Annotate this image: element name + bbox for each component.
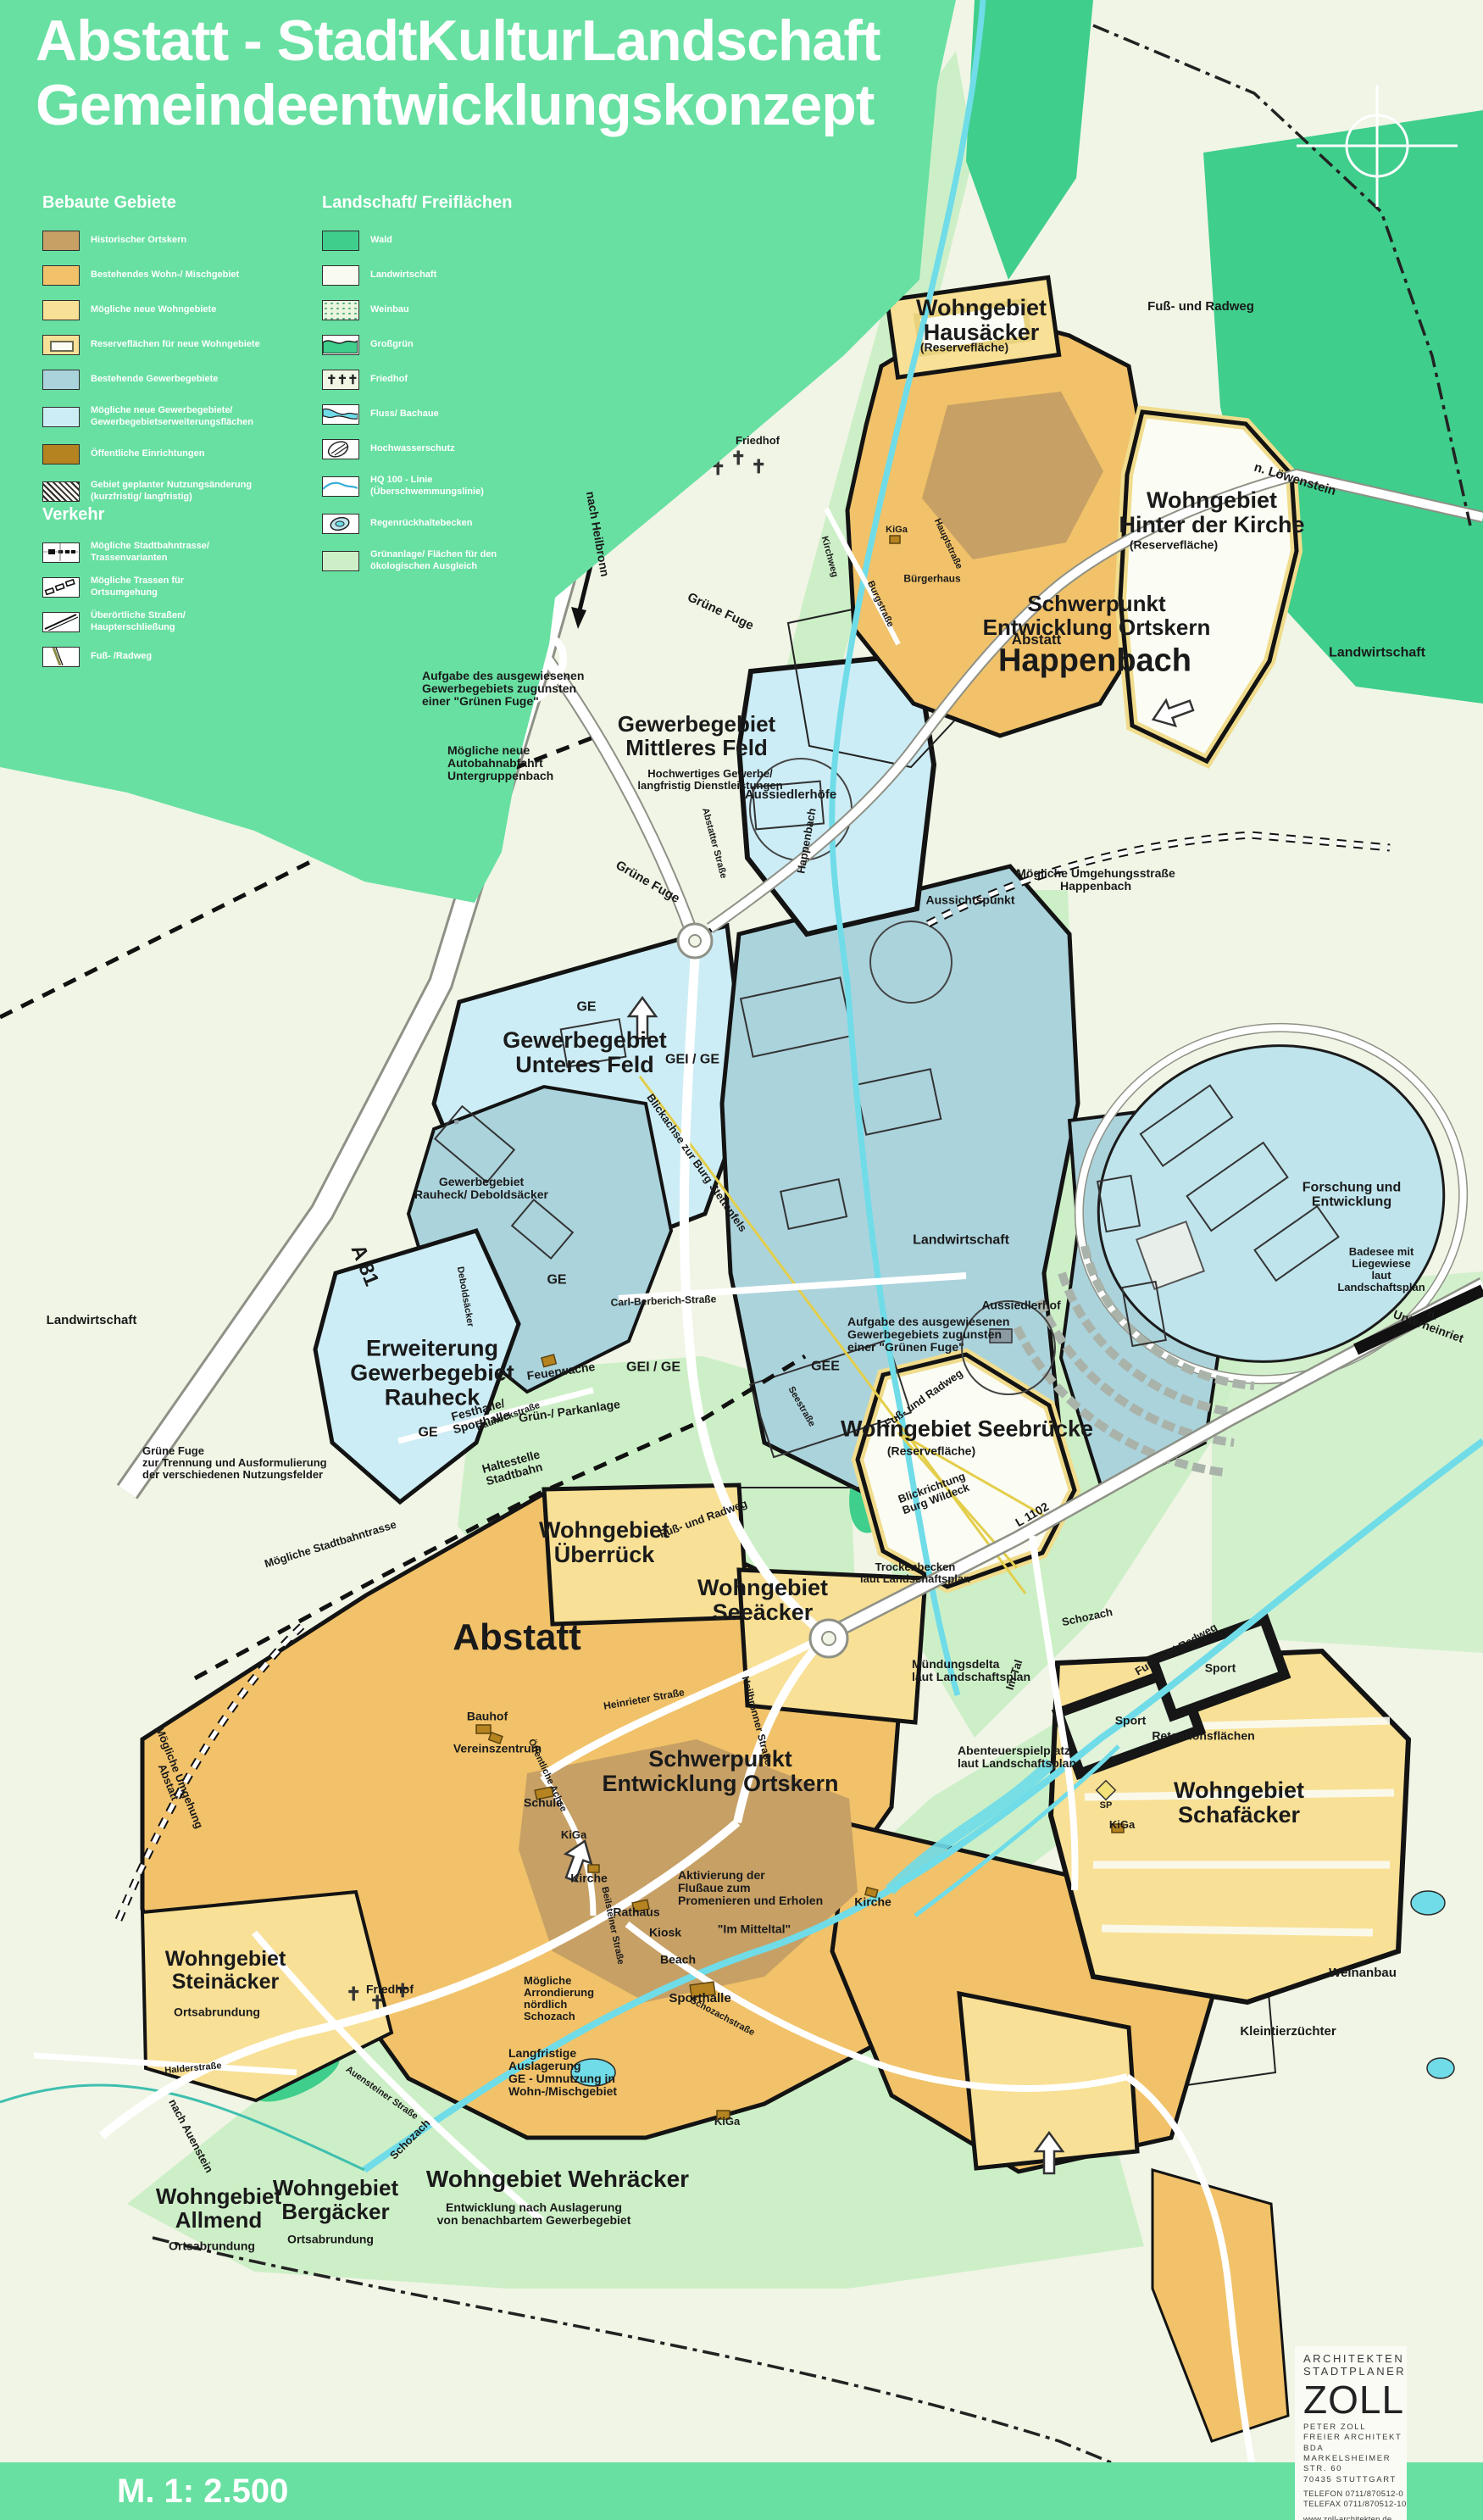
legend-item: Weinbau	[322, 292, 602, 327]
legend-item: HQ 100 - Linie (Überschwemmungslinie)	[322, 466, 602, 506]
poster: ✝✝✝ ✝✝✝ Wohngebiet Hausäcker(Reservefläc…	[0, 0, 1483, 2520]
area-ueberrueck	[544, 1485, 747, 1624]
legend-item: Fuß- /Radweg	[42, 639, 330, 674]
legend-item: Reserveflächen für neue Wohngebiete	[42, 327, 322, 362]
legend-item: Grünanlage/ Flächen für den ökologischen…	[322, 541, 602, 581]
weinbau-swatch-icon	[322, 300, 359, 320]
architect-stamp: ARCHITEKTEN STADTPLANER ZOLL PETER ZOLL …	[1295, 2346, 1407, 2520]
grossgruen-swatch-icon	[322, 335, 359, 355]
stamp-web: www.zoll-architekten.de mail@zoll-archit…	[1303, 2515, 1407, 2520]
hist-ortskern-swatch-icon	[42, 231, 80, 251]
page-title: Abstatt - StadtKulturLandschaft Gemeinde…	[36, 8, 880, 137]
title-line-2: Gemeindeentwicklungskonzept	[36, 73, 880, 137]
ortsumgehung-swatch-icon	[42, 577, 80, 598]
stamp-website-link[interactable]: www.zoll-architekten.de	[1303, 2515, 1407, 2520]
legend-item: Öffentliche Einrichtungen	[42, 437, 322, 471]
legend-item: Mögliche Trassen für Ortsumgehung	[42, 570, 330, 604]
legend-item: Großgrün	[322, 327, 602, 362]
landwirtschaft-swatch-icon	[322, 265, 359, 286]
legend-item: Mögliche neue Gewerbegebiete/ Gewerbegeb…	[42, 397, 322, 437]
fluss-swatch-icon	[322, 404, 359, 425]
svg-text:✝: ✝	[346, 1983, 361, 2005]
zoll-logo: ZOLL	[1303, 2380, 1407, 2419]
legend-item: Regenrückhaltebecken	[322, 506, 602, 541]
reserveflaechen-swatch-icon	[42, 335, 80, 355]
legend-traffic: Verkehr Mögliche Stadtbahntrasse/ Trasse…	[42, 505, 330, 674]
legend-item: Bestehende Gewerbegebiete	[42, 362, 322, 397]
legend-item: ✝✝✝Friedhof	[322, 362, 602, 397]
scale-text: M. 1: 2.500	[117, 2473, 288, 2511]
svg-text:✝: ✝	[730, 448, 746, 469]
stamp-profession: ARCHITEKTEN STADTPLANER	[1303, 2353, 1407, 2378]
legend-built-title: Bebaute Gebiete	[42, 193, 322, 213]
legend-item: Überörtliche Straßen/ Haupterschließung	[42, 604, 330, 639]
stamp-phone: TELEFON 0711/870512-0 TELEFAX 0711/87051…	[1303, 2489, 1407, 2511]
oeffentliche-swatch-icon	[42, 444, 80, 465]
svg-text:✝: ✝	[751, 456, 766, 477]
nutzungsaenderung-swatch-icon	[42, 481, 80, 502]
gewerbe-swatch-icon	[42, 370, 80, 390]
svg-text:✝: ✝	[395, 1980, 410, 2001]
scale-bar: M. 1: 2.500	[0, 2462, 1483, 2520]
stadtbahntrasse-swatch-icon	[42, 542, 80, 563]
legend-item: Mögliche Stadtbahntrasse/ Trassenvariant…	[42, 535, 330, 570]
legend-landscape: Landschaft/ Freiflächen Wald Landwirtsch…	[322, 193, 602, 581]
legend-item: Landwirtschaft	[322, 258, 602, 292]
friedhof-swatch-icon: ✝✝✝	[322, 370, 359, 390]
wald-swatch-icon	[322, 231, 359, 251]
hochwasserschutz-swatch-icon	[322, 439, 359, 459]
hq100-swatch-icon	[322, 476, 359, 497]
legend-landscape-title: Landschaft/ Freiflächen	[322, 193, 602, 213]
legend-traffic-title: Verkehr	[42, 505, 330, 525]
strassen-swatch-icon	[42, 612, 80, 632]
legend-item: Hochwasserschutz	[322, 431, 602, 466]
stamp-address: PETER ZOLL FREIER ARCHITEKT BDA MARKELSH…	[1303, 2423, 1407, 2485]
wohngebiet-swatch-icon	[42, 265, 80, 286]
legend-item: Wald	[322, 223, 602, 258]
legend-item: Historischer Ortskern	[42, 223, 322, 258]
svg-text:✝: ✝	[369, 1992, 385, 2013]
legend-item: Mögliche neue Wohngebiete	[42, 292, 322, 327]
legend-item: Bestehendes Wohn-/ Mischgebiet	[42, 258, 322, 292]
legend-built: Bebaute Gebiete Historischer Ortskern Be…	[42, 193, 322, 511]
neue-gewerbe-swatch-icon	[42, 407, 80, 427]
neue-wohngebiete-swatch-icon	[42, 300, 80, 320]
title-line-1: Abstatt - StadtKulturLandschaft	[36, 8, 880, 73]
svg-text:✝✝✝: ✝✝✝	[326, 373, 358, 387]
fussradweg-swatch-icon	[42, 647, 80, 667]
legend-item: Fluss/ Bachaue	[322, 397, 602, 431]
